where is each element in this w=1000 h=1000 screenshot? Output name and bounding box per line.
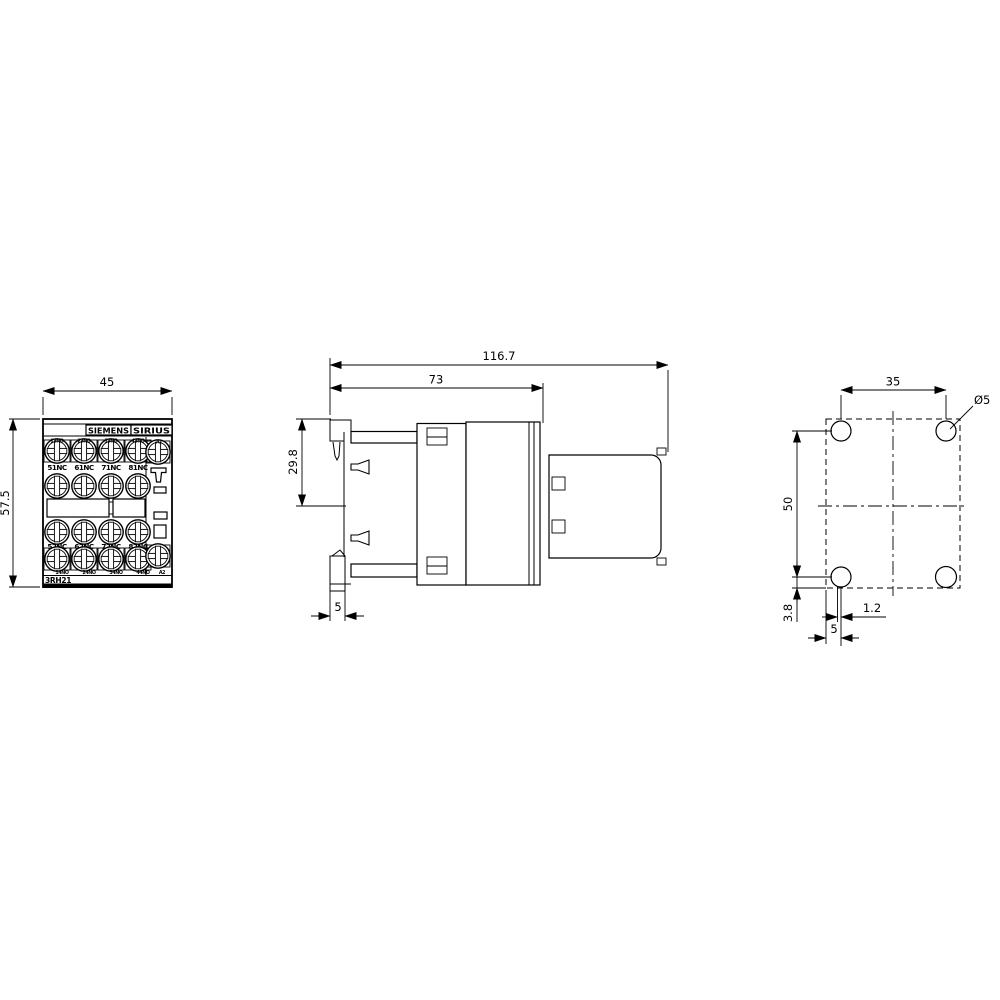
front-height-value: 57.5 [0,490,12,516]
snap-clip [351,460,369,474]
series-label: SIRIUS [133,427,170,436]
terminal-screw [45,520,69,544]
snap-clip [351,531,369,545]
terminal-label: 13NO [50,439,63,445]
terminal-screw [72,547,96,571]
dim-offset-vertical: 3.8 [781,562,826,622]
dim-offset-horizontal: 1.2 [822,587,886,646]
terminal-label: 61NC [74,463,94,472]
terminal-label: 81NC [128,463,148,472]
contactor-front-body: SIEMENS SIRIUS 13NO 23NO 33NO [43,419,172,588]
mounting-hole [936,567,957,588]
rail-depth-value: 5 [334,600,341,614]
terminal-screw [146,544,170,568]
terminal-label: 51NC [47,463,67,472]
terminal-screw [99,474,123,498]
hole-diameter-value: Ø5 [974,393,990,407]
front-view: 45 57.5 SIEMENS SIRIUS [0,375,172,588]
dim-body-depth: 73 [330,373,543,424]
accessory-slot [154,487,166,493]
terminal-screw [72,474,96,498]
front-width-value: 45 [100,375,115,389]
dim-front-height: 57.5 [0,419,40,587]
terminal-screw [126,474,150,498]
mounting-hole [831,421,851,441]
mounting-hole [936,421,956,441]
lower-arm [351,564,417,577]
dim-rail-depth: 5 [311,589,364,621]
terminal-screw [99,547,123,571]
dim-hole-spacing-vertical: 50 [781,431,832,577]
terminal-screw [45,474,69,498]
contactor-side-body [330,420,666,591]
edge-distance-value: 5 [830,622,837,636]
terminal-label: A1 [156,440,162,446]
dim-front-width: 45 [43,375,172,415]
terminal-label: 71NC [101,463,121,472]
side-view: 116.7 73 29.8 5 [286,349,668,621]
nameplate-window-right [113,499,145,517]
mounting-hole [831,567,851,587]
hole-diameter-callout: Ø5 [950,393,990,429]
hole-spacing-v-value: 50 [781,497,795,512]
mid-housing [417,424,466,586]
clip-offset-value: 29.8 [286,449,300,475]
terminal-screw [72,520,96,544]
hole-spacing-h-value: 35 [886,375,901,389]
nameplate-window-left [47,499,109,517]
brand-label: SIEMENS [88,427,129,436]
drilling-plan: 35 Ø5 50 3.8 1.2 [781,375,990,647]
offset-v-value: 3.8 [781,604,795,622]
dimension-drawing-page: 45 57.5 SIEMENS SIRIUS [0,0,1000,1000]
accessory-slot [154,512,167,519]
total-depth-value: 116.7 [483,349,516,363]
terminal-label: 43NO [131,439,144,445]
base-foot-band [43,584,172,589]
technical-drawing: 45 57.5 SIEMENS SIRIUS [0,0,1000,1000]
terminal-label: 23NO [77,439,90,445]
terminal-label: 33NO [104,439,117,445]
terminal-screw [99,520,123,544]
terminal-screw [126,520,150,544]
upper-arm [351,432,417,444]
dim-hole-spacing-horizontal: 35 [841,375,946,420]
plug-in-module [549,448,666,565]
body-depth-value: 73 [429,373,444,387]
terminal-screw [45,547,69,571]
accessory-slot [154,525,166,538]
dim-clip-offset: 29.8 [286,419,346,506]
din-rail-plate [330,420,351,591]
offset-h-value: 1.2 [863,601,881,615]
